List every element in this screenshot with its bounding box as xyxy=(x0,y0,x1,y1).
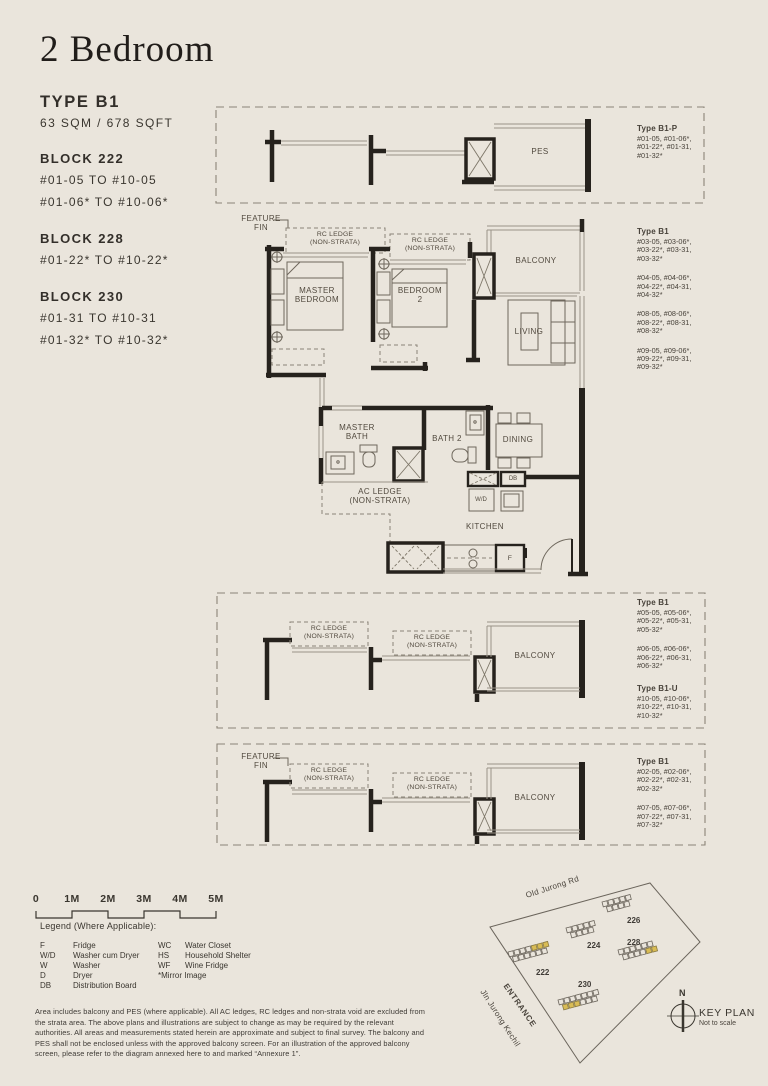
keyplan-block-222: 222 xyxy=(536,968,549,977)
room-label-kitchen: KITCHEN xyxy=(466,522,504,531)
legend-title: Legend (Where Applicable): xyxy=(40,921,156,931)
legend-row: WWasher xyxy=(40,961,100,970)
legend-abbr: F xyxy=(40,941,73,950)
scale-tick-label: 3M xyxy=(136,893,152,905)
callout-type-b1-mid: Type B1 #05-05, #05-06*, #05-22*, #05-31… xyxy=(637,598,709,681)
keyplan-block-230: 230 xyxy=(578,980,591,989)
room-label-balcony: BALCONY xyxy=(515,256,556,265)
callout-units: #01-05, #01-06*, #01-22*, #01-31, #01-32… xyxy=(637,135,709,160)
legend-abbr: WF xyxy=(158,961,185,970)
feature-fin-label: FEATURE FIN xyxy=(241,752,281,770)
plan-main-unit xyxy=(265,219,588,576)
plan-strip-mid xyxy=(217,593,705,728)
ac-ledge-label: AC LEDGE (NON-STRATA) xyxy=(350,487,411,505)
scale-tick-label: 4M xyxy=(172,893,188,905)
room-label-balcony: BALCONY xyxy=(514,793,555,802)
scale-tick-label: 0 xyxy=(33,893,39,905)
legend-desc: Washer cum Dryer xyxy=(73,951,139,960)
legend-abbr: WC xyxy=(158,941,185,950)
room-label-living: LIVING xyxy=(515,327,544,336)
legend-abbr: HS xyxy=(158,951,185,960)
legend-row: DDryer xyxy=(40,971,93,980)
plan-strip-bottom xyxy=(217,744,705,845)
legend-desc: Distribution Board xyxy=(73,981,137,990)
rc-ledge-label: RC LEDGE (NON-STRATA) xyxy=(304,625,354,641)
plan-strip-pes xyxy=(216,107,704,203)
block-230-heading: BLOCK 230 xyxy=(40,289,124,304)
room-label-pes: PES xyxy=(531,147,548,156)
feature-fin-label: FEATURE FIN xyxy=(241,214,281,232)
floorplan-page: 2 Bedroom TYPE B1 63 SQM / 678 SQFT BLOC… xyxy=(0,0,768,1086)
rc-ledge-label: RC LEDGE (NON-STRATA) xyxy=(405,237,455,253)
block-230-units-line: #01-31 TO #10-31 xyxy=(40,311,157,325)
block-222-units-line: #01-05 TO #10-05 xyxy=(40,173,157,187)
block-222-heading: BLOCK 222 xyxy=(40,151,124,166)
callout-units: #06-05, #06-06*, #06-22*, #06-31, #06-32… xyxy=(637,645,709,670)
keyplan-block-224: 224 xyxy=(587,941,600,950)
legend-row: WCWater Closet xyxy=(158,941,231,950)
rc-ledge-label: RC LEDGE (NON-STRATA) xyxy=(407,776,457,792)
block-222-units-line: #01-06* TO #10-06* xyxy=(40,195,169,209)
legend-desc: Wine Fridge xyxy=(185,961,228,970)
callout-units: #04-05, #04-06*, #04-22*, #04-31, #04-32… xyxy=(637,274,709,299)
room-label-master-bath: MASTER BATH xyxy=(339,423,375,441)
legend-abbr: W xyxy=(40,961,73,970)
compass-north-label: N xyxy=(679,988,686,998)
legend-row: W/DWasher cum Dryer xyxy=(40,951,139,960)
legend-abbr: DB xyxy=(40,981,73,990)
legend-abbr: D xyxy=(40,971,73,980)
callout-type-b1-bottom: Type B1 #02-05, #02-06*, #02-22*, #02-31… xyxy=(637,757,709,840)
legend-mirror-note: *Mirror Image xyxy=(158,971,206,980)
block-230-units-line: #01-32* TO #10-32* xyxy=(40,333,169,347)
callout-units: #09-05, #09-06*, #09-22*, #09-31, #09-32… xyxy=(637,347,709,372)
callout-units: #03-05, #03-06*, #03-22*, #03-31, #03-32… xyxy=(637,238,709,263)
callout-units: #10-05, #10-06*, #10-22*, #10-31, #10-32… xyxy=(637,695,709,720)
legend-row: FFridge xyxy=(40,941,96,950)
legend-desc: Household Shelter xyxy=(185,951,251,960)
scale-tick-label: 1M xyxy=(64,893,80,905)
legend-row: DBDistribution Board xyxy=(40,981,137,990)
keyplan-graphic xyxy=(490,883,700,1063)
callout-type-b1u: Type B1-U #10-05, #10-06*, #10-22*, #10-… xyxy=(637,684,709,731)
callout-units: #05-05, #05-06*, #05-22*, #05-31, #05-32… xyxy=(637,609,709,634)
rc-ledge-label: RC LEDGE (NON-STRATA) xyxy=(407,634,457,650)
room-label-dining: DINING xyxy=(503,435,533,444)
rc-ledge-label: RC LEDGE (NON-STRATA) xyxy=(310,231,360,247)
room-label-balcony: BALCONY xyxy=(514,651,555,660)
legend-desc: Water Closet xyxy=(185,941,231,950)
callout-title: Type B1 xyxy=(637,227,709,236)
scale-tick-label: 5M xyxy=(208,893,224,905)
callout-title: Type B1 xyxy=(637,757,709,766)
keyplan-note: Not to scale xyxy=(699,1020,736,1027)
callout-type-b1p: Type B1-P #01-05, #01-06*, #01-22*, #01-… xyxy=(637,124,709,171)
legend-abbr: W/D xyxy=(40,951,73,960)
legend-row: WFWine Fridge xyxy=(158,961,228,970)
rc-ledge-label: RC LEDGE (NON-STRATA) xyxy=(304,767,354,783)
unit-type-title: TYPE B1 xyxy=(40,93,120,112)
legend-desc: Fridge xyxy=(73,941,96,950)
block-228-heading: BLOCK 228 xyxy=(40,231,124,246)
legend-desc: Dryer xyxy=(73,971,93,980)
callout-units: #02-05, #02-06*, #02-22*, #02-31, #02-32… xyxy=(637,768,709,793)
legend-row: *Mirror Image xyxy=(158,971,206,980)
room-label-master-bedroom: MASTER BEDROOM xyxy=(295,286,339,304)
callout-title: Type B1 xyxy=(637,598,709,607)
callout-units: #08-05, #08-06*, #08-22*, #08-31, #08-32… xyxy=(637,310,709,335)
legend-row: HSHousehold Shelter xyxy=(158,951,251,960)
keyplan-block-226: 226 xyxy=(627,916,640,925)
unit-area: 63 SQM / 678 SQFT xyxy=(40,116,173,130)
fridge-label: F xyxy=(508,554,513,563)
disclaimer-text: Area includes balcony and PES (where app… xyxy=(35,1007,429,1060)
room-label-bedroom2: BEDROOM 2 xyxy=(398,286,442,304)
callout-type-b1-main: Type B1 #03-05, #03-06*, #03-22*, #03-31… xyxy=(637,227,709,383)
legend-desc: Washer xyxy=(73,961,100,970)
db-label: DB xyxy=(509,476,517,482)
callout-title: Type B1-U xyxy=(637,684,709,693)
page-title: 2 Bedroom xyxy=(40,28,214,71)
keyplan-block-228: 228 xyxy=(627,938,640,947)
keyplan-title: KEY PLAN xyxy=(699,1007,755,1019)
callout-title: Type B1-P xyxy=(637,124,709,133)
scale-bar xyxy=(36,911,216,918)
callout-units: #07-05, #07-06*, #07-22*, #07-31, #07-32… xyxy=(637,804,709,829)
room-label-bath2: BATH 2 xyxy=(432,434,462,443)
wd-label: W/D xyxy=(475,497,487,503)
scale-tick-label: 2M xyxy=(100,893,116,905)
block-228-units-line: #01-22* TO #10-22* xyxy=(40,253,169,267)
